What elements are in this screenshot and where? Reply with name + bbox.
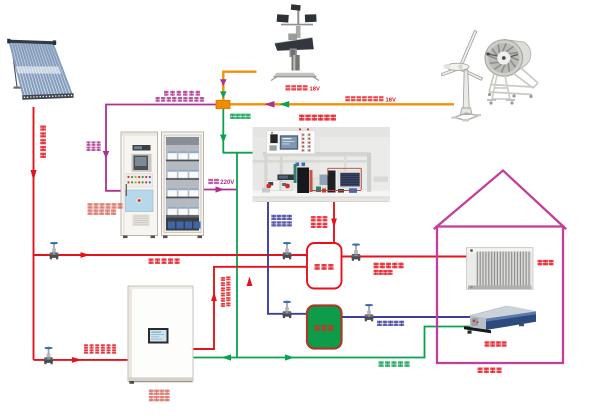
- svg-text:220V: 220V: [220, 180, 234, 186]
- svg-text:18V: 18V: [310, 87, 320, 93]
- svg-text:18V: 18V: [386, 97, 396, 103]
